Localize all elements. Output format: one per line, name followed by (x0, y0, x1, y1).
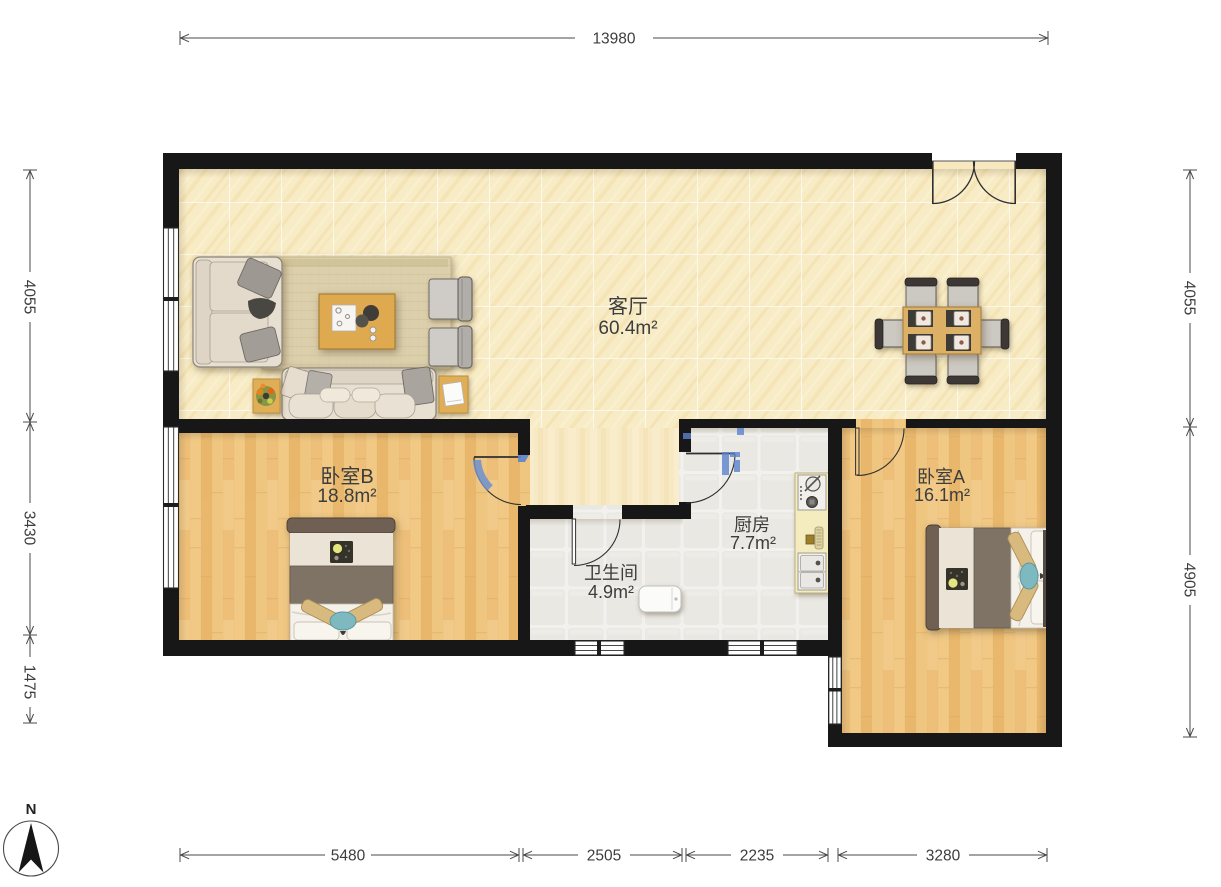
svg-text:18.8m²: 18.8m² (317, 486, 376, 507)
svg-text:3430: 3430 (21, 511, 38, 546)
svg-text:厨房: 厨房 (734, 515, 770, 535)
svg-text:2505: 2505 (587, 848, 621, 865)
svg-text:4055: 4055 (1181, 281, 1198, 315)
svg-text:13980: 13980 (592, 31, 635, 48)
svg-text:2235: 2235 (740, 848, 774, 865)
svg-text:4.9m²: 4.9m² (588, 582, 634, 602)
svg-text:7.7m²: 7.7m² (730, 533, 776, 553)
svg-text:5480: 5480 (331, 848, 366, 865)
svg-text:卧室B: 卧室B (320, 465, 373, 488)
svg-text:4055: 4055 (21, 280, 38, 314)
svg-text:60.4m²: 60.4m² (598, 318, 657, 339)
svg-text:3280: 3280 (926, 848, 961, 865)
svg-text:客厅: 客厅 (608, 295, 648, 318)
svg-text:卧室A: 卧室A (917, 467, 965, 487)
svg-text:1475: 1475 (21, 665, 38, 699)
svg-text:卫生间: 卫生间 (584, 563, 638, 583)
svg-text:N: N (26, 801, 37, 818)
svg-text:16.1m²: 16.1m² (914, 485, 970, 505)
svg-text:4905: 4905 (1181, 563, 1198, 597)
